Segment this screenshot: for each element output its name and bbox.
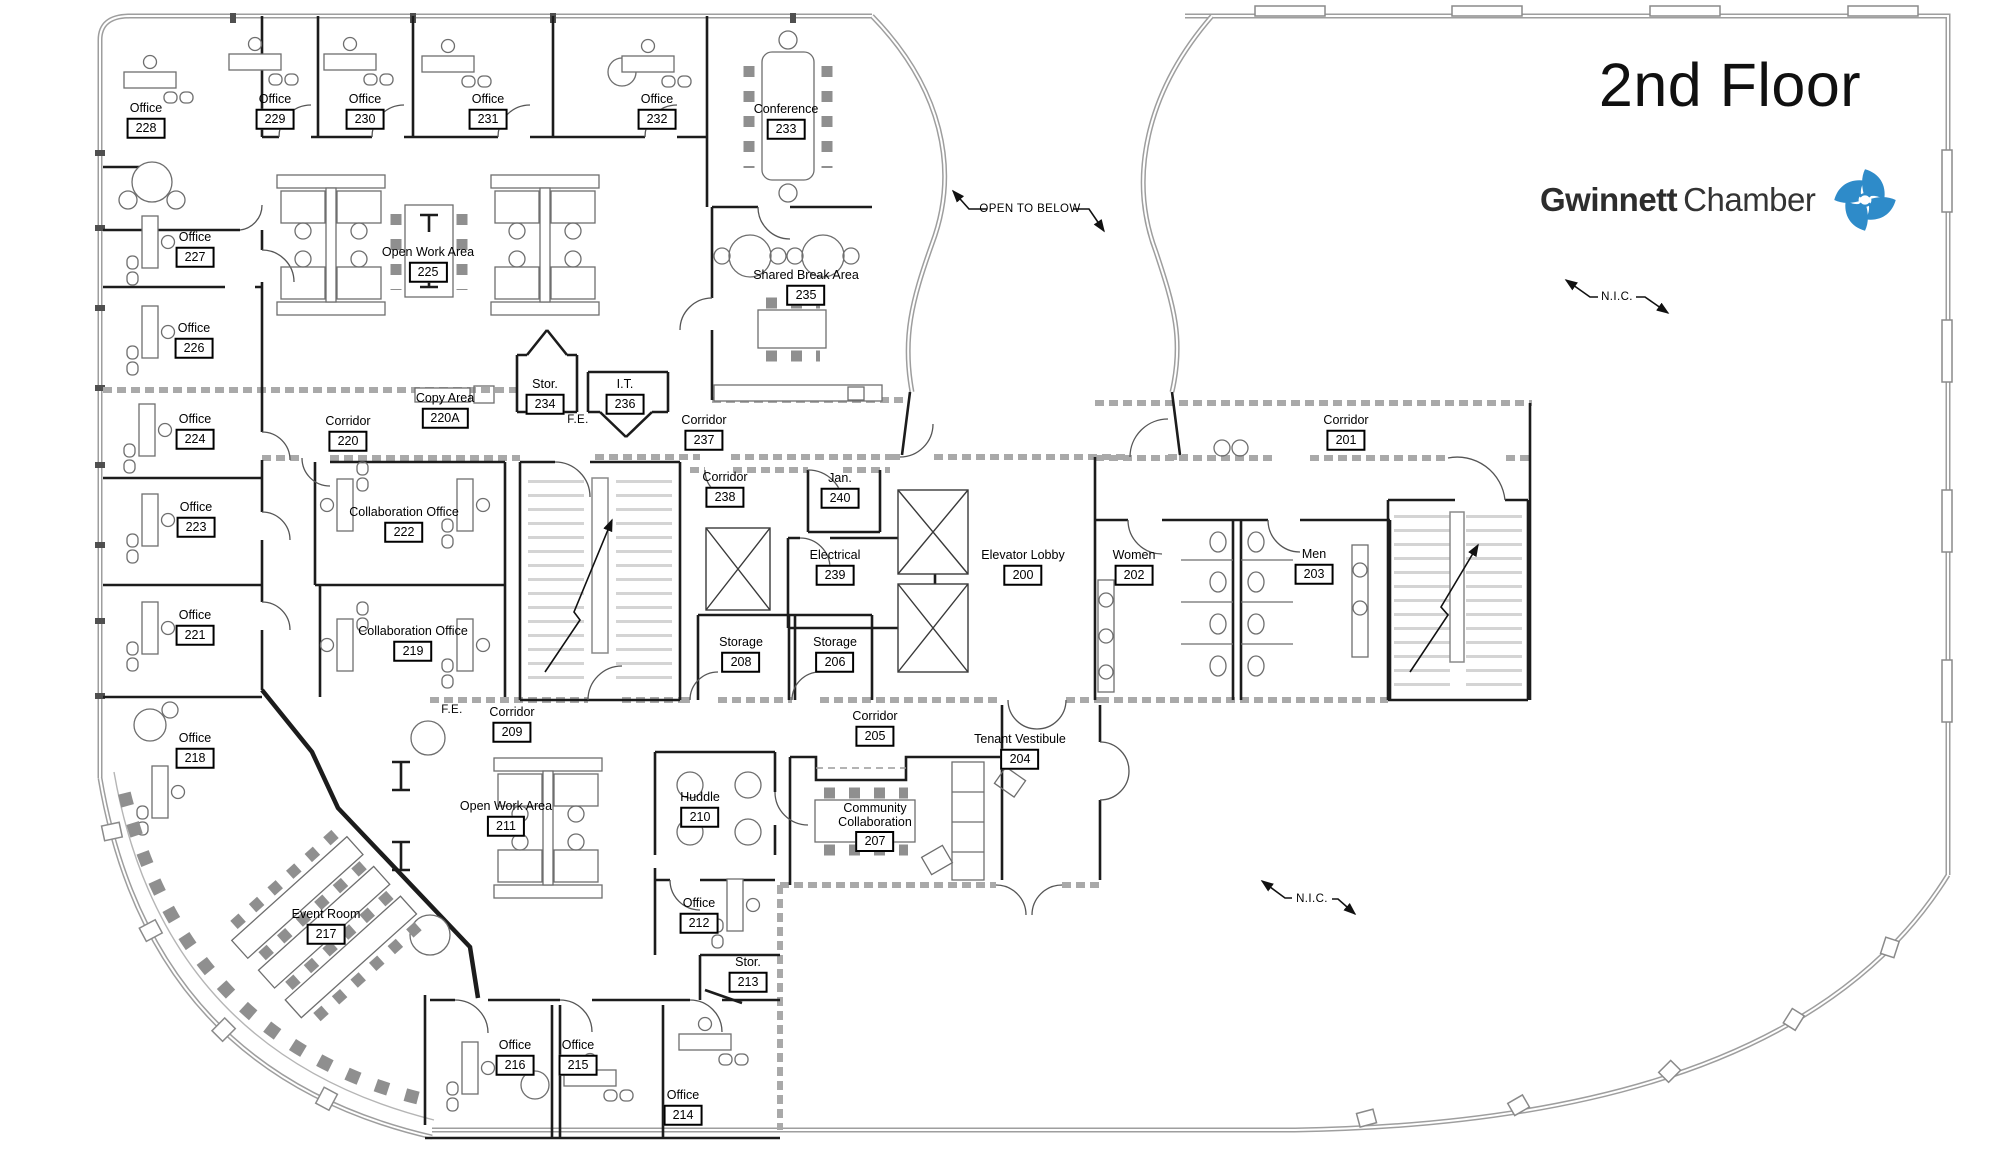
room-label: Corridor205 [852, 710, 897, 747]
room-label: Office230 [346, 93, 385, 130]
room-label: Office221 [176, 609, 215, 646]
room-label: Office218 [176, 732, 215, 769]
room-label: Office216 [496, 1039, 535, 1076]
plan-annotation: OPEN TO BELOW [979, 203, 1080, 215]
room-number-badge: 207 [856, 831, 895, 852]
room-name: Corridor [1323, 414, 1368, 428]
room-name: Open Work Area [382, 246, 474, 260]
room-label: Office231 [469, 93, 508, 130]
room-name: Collaboration Office [349, 506, 459, 520]
room-name: Corridor [325, 415, 370, 429]
room-label: Community Collaboration207 [838, 802, 912, 852]
room-number-badge: 238 [706, 486, 745, 507]
room-name: Corridor [681, 414, 726, 428]
room-number-badge: 240 [821, 487, 860, 508]
room-number-badge: 224 [176, 428, 215, 449]
room-label: Office229 [256, 93, 295, 130]
furniture-layer [119, 31, 1026, 1111]
brand-lockup: GwinnettChamber [1540, 168, 1897, 232]
room-number-badge: 232 [638, 108, 677, 129]
plan-annotation: N.I.C. [1296, 893, 1328, 905]
room-number-badge: 236 [606, 393, 645, 414]
brand-name: GwinnettChamber [1540, 181, 1815, 219]
room-name: Office [664, 1089, 703, 1103]
room-label: Event Room217 [292, 908, 361, 945]
room-name: Office [559, 1039, 598, 1053]
room-name: Huddle [680, 791, 720, 805]
room-name: Office [175, 322, 214, 336]
room-label: Copy Area220A [416, 392, 474, 429]
room-label: Open Work Area225 [382, 246, 474, 283]
room-name: Elevator Lobby [981, 549, 1064, 563]
stairs-west [545, 478, 644, 688]
room-name: Office [176, 732, 215, 746]
room-name: Shared Break Area [753, 269, 859, 283]
room-name: Stor. [526, 378, 565, 392]
room-number-badge: 218 [176, 747, 215, 768]
room-label: Collaboration Office219 [358, 625, 468, 662]
title-block: 2nd Floor GwinnettChamber [1520, 50, 1940, 120]
floor-plan: Office228Office229Office230Office231Offi… [0, 0, 2000, 1164]
room-number-badge: 220A [421, 407, 468, 428]
room-label: Tenant Vestibule204 [974, 733, 1066, 770]
room-name: I.T. [606, 378, 645, 392]
room-name: Collaboration Office [358, 625, 468, 639]
room-label: Collaboration Office222 [349, 506, 459, 543]
room-label: Shared Break Area235 [753, 269, 859, 306]
plan-annotation: F.E. [441, 704, 462, 716]
room-name: Office [638, 93, 677, 107]
room-name: Office [176, 609, 215, 623]
room-number-badge: 211 [487, 815, 525, 836]
room-label: Office227 [176, 231, 215, 268]
room-number-badge: 222 [385, 521, 424, 542]
room-number-badge: 200 [1004, 564, 1043, 585]
room-name: Office [680, 897, 719, 911]
room-number-badge: 219 [394, 640, 433, 661]
room-name: Office [176, 231, 215, 245]
room-number-badge: 201 [1327, 429, 1366, 450]
room-number-badge: 223 [177, 516, 216, 537]
room-number-badge: 231 [469, 108, 508, 129]
room-number-badge: 210 [681, 806, 720, 827]
room-number-badge: 235 [787, 284, 826, 305]
room-label: Corridor237 [681, 414, 726, 451]
room-name: Event Room [292, 908, 361, 922]
room-name: Open Work Area [460, 800, 552, 814]
room-label: Stor.213 [729, 956, 768, 993]
room-name: Copy Area [416, 392, 474, 406]
room-label: Corridor209 [489, 706, 534, 743]
room-label: Office226 [175, 322, 214, 359]
room-number-badge: 233 [767, 118, 806, 139]
room-label: Open Work Area211 [460, 800, 552, 837]
room-number-badge: 209 [493, 721, 532, 742]
room-label: Conference233 [754, 103, 819, 140]
room-name: Office [256, 93, 295, 107]
room-label: Office223 [177, 501, 216, 538]
room-label: Office232 [638, 93, 677, 130]
room-label: Jan.240 [821, 472, 860, 509]
room-number-badge: 230 [346, 108, 385, 129]
room-name: Women [1113, 549, 1156, 563]
room-label: Office224 [176, 413, 215, 450]
room-label: Storage206 [813, 636, 857, 673]
room-name: Men [1295, 548, 1334, 562]
room-number-badge: 212 [680, 912, 719, 933]
room-number-badge: 220 [329, 430, 368, 451]
room-number-badge: 208 [722, 651, 761, 672]
room-number-badge: 203 [1295, 563, 1334, 584]
room-number-badge: 215 [559, 1054, 598, 1075]
room-number-badge: 202 [1115, 564, 1154, 585]
room-name: Stor. [729, 956, 768, 970]
room-name: Conference [754, 103, 819, 117]
room-number-badge: 239 [816, 564, 855, 585]
room-name: Storage [719, 636, 763, 650]
room-number-badge: 214 [664, 1104, 703, 1125]
room-number-badge: 227 [176, 246, 215, 267]
room-name: Office [346, 93, 385, 107]
room-number-badge: 216 [496, 1054, 535, 1075]
room-label: Office215 [559, 1039, 598, 1076]
room-name: Corridor [489, 706, 534, 720]
room-label: Corridor238 [702, 471, 747, 508]
room-number-badge: 226 [175, 337, 214, 358]
room-number-badge: 213 [729, 971, 768, 992]
room-name: Electrical [810, 549, 861, 563]
room-name: Storage [813, 636, 857, 650]
room-number-badge: 225 [409, 261, 448, 282]
plan-annotation: N.I.C. [1601, 291, 1633, 303]
room-label: Office212 [680, 897, 719, 934]
room-name: Office [496, 1039, 535, 1053]
room-label: Elevator Lobby200 [981, 549, 1064, 586]
room-label: Office214 [664, 1089, 703, 1126]
room-name: Community Collaboration [838, 802, 912, 829]
room-name: Office [127, 102, 166, 116]
room-name: Office [469, 93, 508, 107]
brand-logo-icon [1833, 168, 1897, 232]
room-number-badge: 229 [256, 108, 295, 129]
room-label: Men203 [1295, 548, 1334, 585]
room-label: Huddle210 [680, 791, 720, 828]
room-name: Tenant Vestibule [974, 733, 1066, 747]
room-number-badge: 237 [685, 429, 724, 450]
plan-annotation: F.E. [567, 414, 588, 426]
stairs-east [1410, 512, 1494, 692]
room-number-badge: 234 [526, 393, 565, 414]
room-name: Office [176, 413, 215, 427]
room-number-badge: 205 [856, 725, 895, 746]
room-number-badge: 221 [176, 624, 215, 645]
brand-name-light: Chamber [1683, 181, 1815, 218]
room-number-badge: 206 [816, 651, 855, 672]
room-name: Office [177, 501, 216, 515]
room-name: Corridor [702, 471, 747, 485]
brand-name-bold: Gwinnett [1540, 181, 1677, 218]
room-number-badge: 228 [127, 117, 166, 138]
room-label: Storage208 [719, 636, 763, 673]
room-label: Stor.234 [526, 378, 565, 415]
room-number-badge: 204 [1001, 748, 1040, 769]
room-name: Jan. [821, 472, 860, 486]
room-label: Office228 [127, 102, 166, 139]
room-number-badge: 217 [307, 923, 346, 944]
room-label: I.T.236 [606, 378, 645, 415]
room-name: Corridor [852, 710, 897, 724]
room-label: Women202 [1113, 549, 1156, 586]
room-label: Corridor220 [325, 415, 370, 452]
page-title: 2nd Floor [1520, 50, 1940, 120]
room-label: Electrical239 [810, 549, 861, 586]
room-label: Corridor201 [1323, 414, 1368, 451]
